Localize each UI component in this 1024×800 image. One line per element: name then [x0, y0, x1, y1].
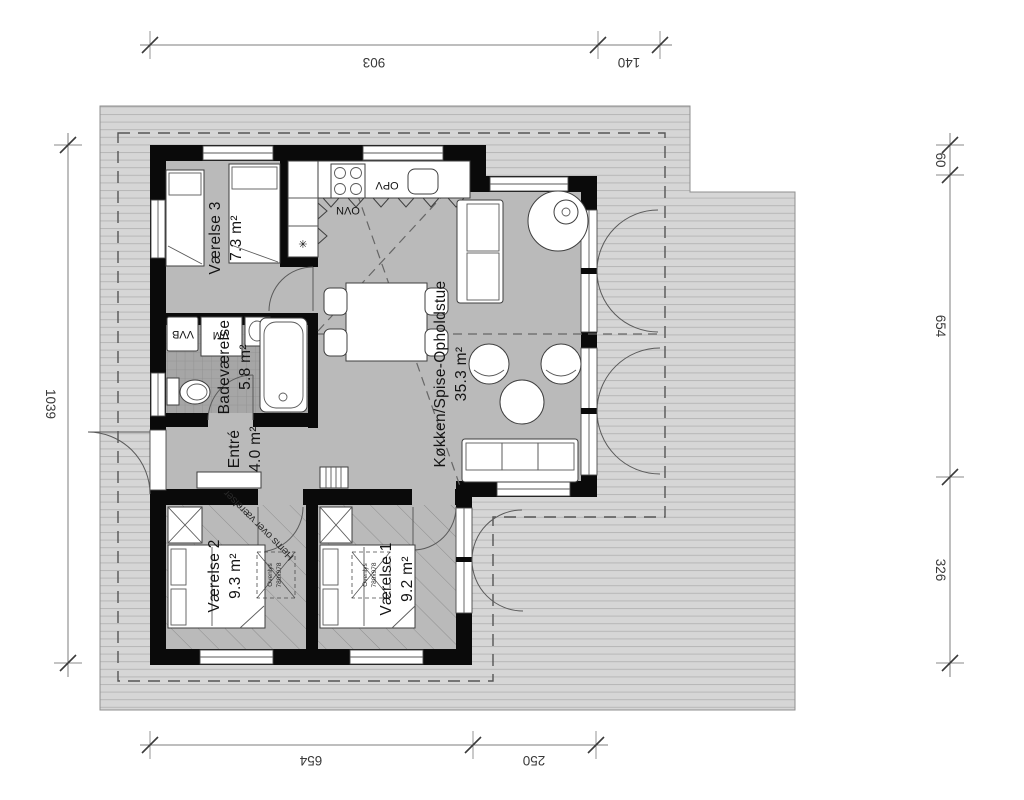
room-label-badevaerelse: Badeværelse — [216, 320, 233, 415]
skylight-label: Ovenlys — [267, 563, 274, 587]
side-table-round — [554, 200, 578, 224]
dimension-right: 60 654 326 — [933, 133, 964, 677]
oven-label: OVN — [336, 204, 360, 216]
dining-chair — [324, 329, 347, 356]
dimension-left: 1039 — [43, 133, 82, 677]
wall-bath-entre-right — [253, 413, 318, 427]
room-area-living: 35.3 m² — [453, 347, 470, 402]
dim-right-326: 326 — [933, 559, 948, 582]
toilet-tank — [167, 378, 179, 405]
room-area-vaerelse1: 9.2 m² — [399, 556, 416, 602]
room-label-living: Køkken/Spise-Opholdstue — [432, 281, 449, 468]
entrance-door — [150, 430, 166, 490]
bed-single-1 — [166, 170, 204, 266]
loft-ladder — [320, 467, 348, 488]
bathtub — [260, 318, 307, 412]
sofa-three-seat — [462, 439, 578, 482]
floor-plan-drawing: ✳ OVN OPV VVB VM — [0, 0, 1024, 800]
star-symbol: ✳ — [298, 239, 307, 251]
room-label-vaerelse1: Værelse 1 — [378, 542, 395, 615]
room-label-entre: Entré — [226, 430, 243, 469]
skylight-size: 780x978 — [371, 562, 378, 587]
kitchen-sink — [408, 169, 438, 194]
dim-top-903: 903 — [363, 55, 386, 70]
room-area-badevaerelse: 5.8 m² — [237, 344, 254, 390]
dim-bottom-654: 654 — [299, 753, 322, 768]
sofa-two-seat — [457, 200, 503, 303]
room-area-vaerelse2: 9.3 m² — [227, 553, 244, 599]
water-heater-label: VVB — [172, 328, 194, 340]
entry-bench — [197, 472, 261, 488]
dim-right-654: 654 — [933, 315, 948, 338]
wall-bath-entre-left — [166, 413, 208, 427]
dishwasher-label: OPV — [375, 179, 399, 191]
dining-table — [346, 283, 427, 361]
armchair — [469, 344, 509, 384]
armchair — [541, 344, 581, 384]
dim-left-1039: 1039 — [43, 389, 58, 419]
dim-bottom-250: 250 — [523, 753, 546, 768]
dimension-top: 903 140 — [140, 31, 672, 70]
coffee-table-round — [500, 380, 544, 424]
room-area-vaerelse3: 7.3 m² — [228, 215, 245, 261]
wall-v3-kitchen — [280, 161, 288, 257]
floor-plan-sheet: ✳ OVN OPV VVB VM — [0, 0, 1024, 800]
room-label-vaerelse3: Værelse 3 — [207, 201, 224, 274]
wall-bath-living — [308, 313, 318, 428]
dim-top-140: 140 — [618, 55, 641, 70]
dim-right-60: 60 — [933, 152, 948, 167]
toilet-bowl — [180, 380, 210, 404]
skylight-size: 780x978 — [276, 562, 283, 587]
skylight-label: Ovenlys — [362, 563, 369, 587]
dimension-bottom: 654 250 — [140, 731, 608, 768]
room-area-entre: 4.0 m² — [247, 426, 264, 472]
room-label-vaerelse2: Værelse 2 — [206, 539, 223, 612]
dining-chair — [324, 288, 347, 315]
wall-bedrooms-top-b — [303, 489, 412, 505]
wall-v2-v1 — [306, 505, 318, 649]
